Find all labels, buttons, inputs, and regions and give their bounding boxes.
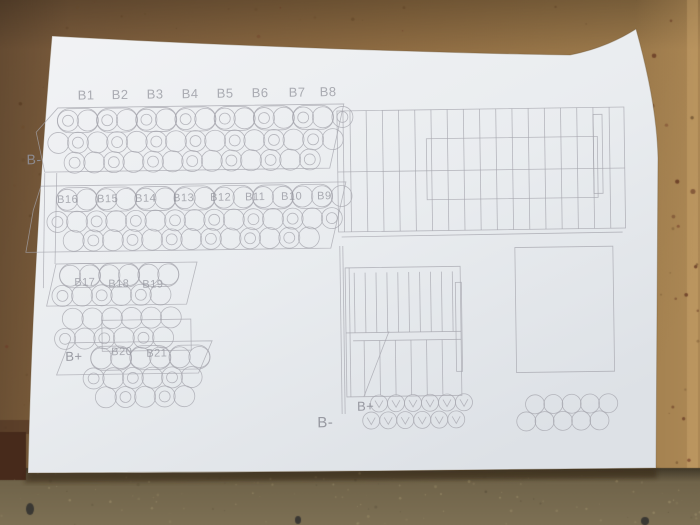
cell-label: B18	[108, 278, 129, 290]
cell-label: B15	[97, 193, 118, 205]
cell-label: B11	[245, 191, 265, 203]
cell-label: B20	[111, 346, 132, 358]
cell-label: B17	[74, 276, 95, 288]
terminal-positive-label: B+	[65, 349, 82, 364]
terminal-negative-label: B-	[317, 414, 333, 431]
cell-label: B21	[146, 347, 167, 359]
paper-scene: B1B2B3B4B5B6B7B8B16B15B14B13B12B11B10B9B…	[0, 0, 700, 525]
cell-label: B5	[217, 85, 234, 100]
cell-label: B7	[289, 84, 306, 99]
terminal-positive-label: B+	[357, 399, 374, 414]
cell-label: B1	[78, 87, 95, 102]
cell-label: B4	[182, 86, 199, 101]
cell-label: B3	[147, 86, 164, 101]
cell-label: B8	[320, 84, 337, 99]
cell-label: B2	[112, 87, 129, 102]
cell-label: B12	[210, 192, 231, 204]
cell-label: B9	[317, 190, 332, 202]
cell-label: B14	[135, 193, 156, 205]
cell-label: B6	[252, 85, 269, 100]
cell-label: B13	[173, 192, 194, 204]
photo-of-battery-pack-drawing: B1B2B3B4B5B6B7B8B16B15B14B13B12B11B10B9B…	[0, 0, 700, 525]
cell-label: B10	[281, 191, 302, 203]
terminal-negative-label: B-	[26, 151, 41, 167]
cell-label: B16	[57, 194, 78, 206]
cell-label: B19	[142, 278, 163, 290]
